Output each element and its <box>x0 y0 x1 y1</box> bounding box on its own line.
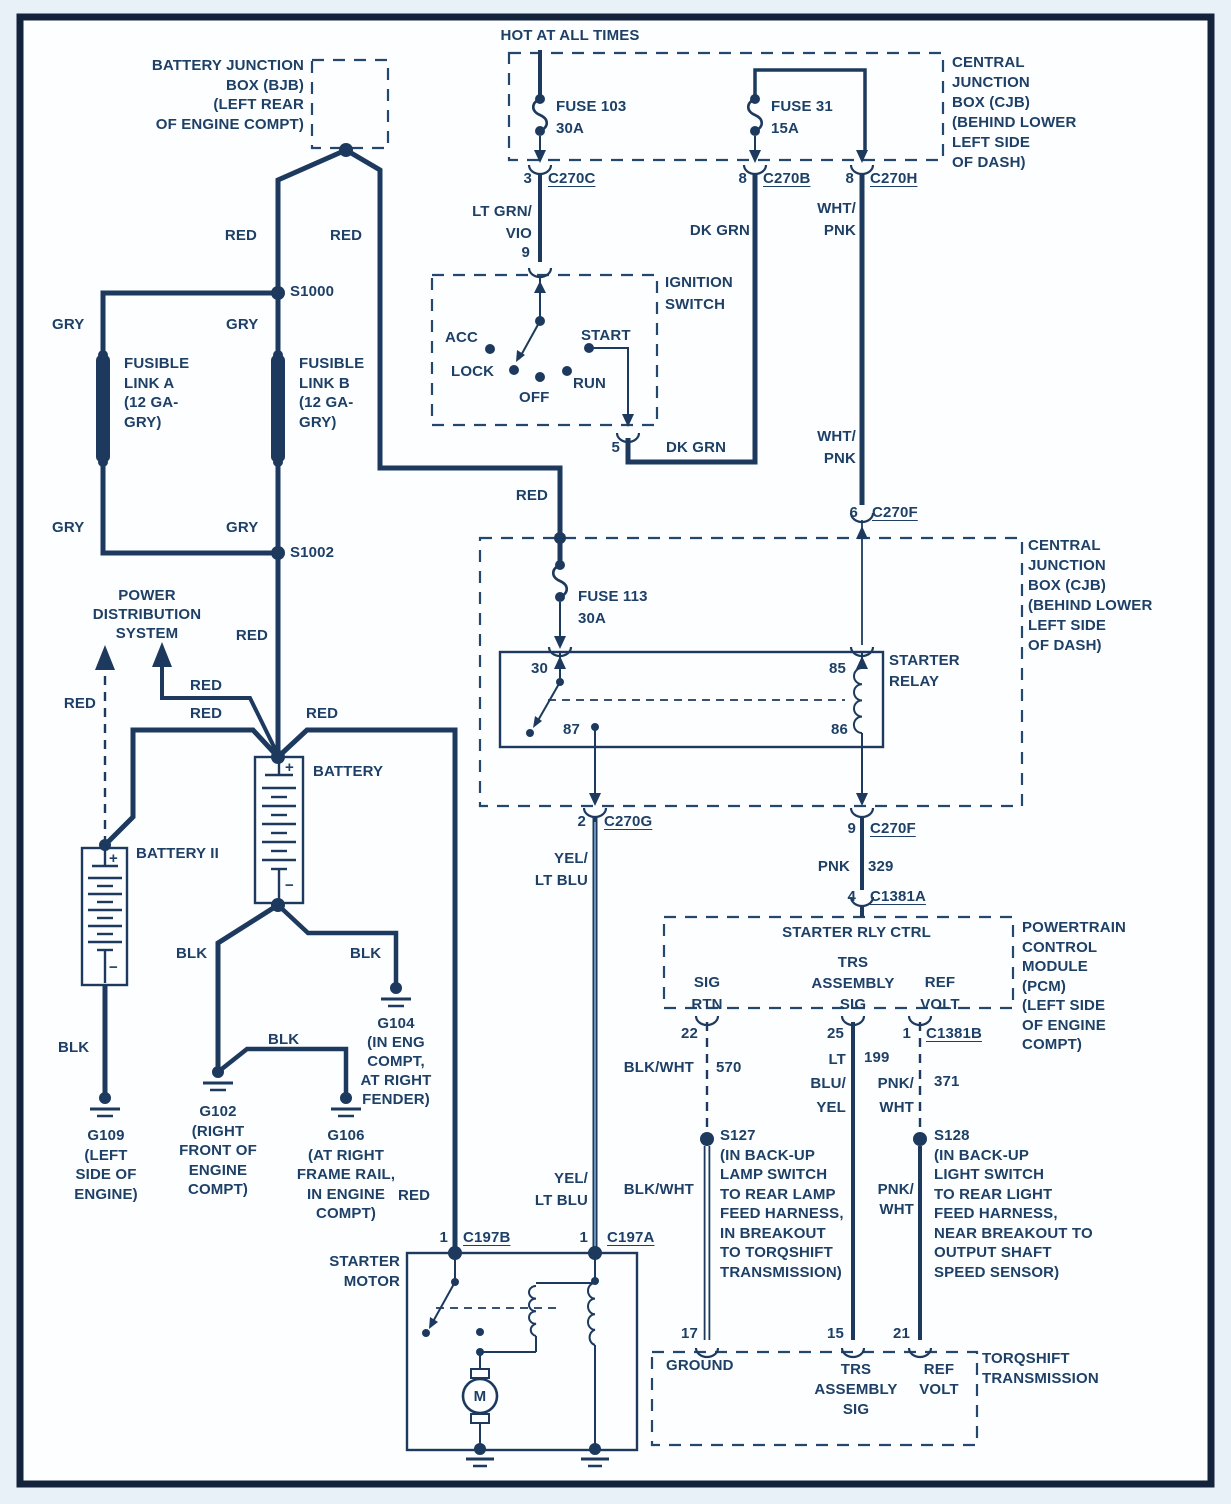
trans-ref-label: REF VOLT <box>906 1360 972 1400</box>
pcm-pin22: 22 <box>668 1024 698 1044</box>
pnk-wht-label-2: PNK/ WHT <box>866 1180 914 1220</box>
pcm-sig-rtn: SIG RTN <box>677 972 737 1016</box>
s127-label: S127 (IN BACK-UP LAMP SWITCH TO REAR LAM… <box>720 1126 890 1282</box>
fusible-link-a-symbol <box>96 355 110 462</box>
circuit-329-label: 329 <box>868 857 918 877</box>
fuse103-label: FUSE 103 30A <box>556 96 646 140</box>
pcm-trs-assembly-sig: TRS ASSEMBLY SIG <box>800 952 906 1015</box>
battery-minus: − <box>285 876 301 896</box>
wht-pnk-label-1: WHT/ PNK <box>808 198 856 242</box>
c1381b-name: C1381B <box>926 1024 1010 1044</box>
red-label-a: RED <box>205 226 257 246</box>
c270f6-pin: 6 <box>832 503 858 523</box>
c1381a-pin: 4 <box>832 887 856 907</box>
g109-label: G109 (LEFT SIDE OF ENGINE) <box>58 1126 154 1204</box>
battery2-label: BATTERY II <box>136 844 266 864</box>
g102-label: G102 (RIGHT FRONT OF ENGINE COMPT) <box>158 1102 278 1200</box>
pcm-ref-volt: REF VOLT <box>908 972 972 1016</box>
pnk-label: PNK <box>806 857 850 877</box>
gry-label-2: GRY <box>226 315 270 335</box>
trans-pin21: 21 <box>880 1324 910 1344</box>
c270h-name: C270H <box>870 169 950 189</box>
battery2-minus: − <box>109 958 125 978</box>
pcm-pin25: 25 <box>814 1024 844 1044</box>
blk-label-battery2: BLK <box>58 1038 102 1058</box>
dk-grn-label-2: DK GRN <box>666 438 758 458</box>
circuit-371-label: 371 <box>934 1072 978 1092</box>
fusible-link-b-symbol <box>271 355 285 462</box>
fusible-link-a-label: FUSIBLE LINK A (12 GA- GRY) <box>124 354 208 432</box>
red-label-pds: RED <box>50 694 96 714</box>
c197a-pin: 1 <box>566 1228 588 1248</box>
trans-trs-label: TRS ASSEMBLY SIG <box>806 1360 906 1420</box>
battery2-plus: + <box>109 849 125 869</box>
relay-pin87-label: 87 <box>548 720 580 740</box>
relay-pin86-label: 86 <box>816 720 848 740</box>
g104-label: G104 (IN ENG COMPT, AT RIGHT FENDER) <box>348 1014 444 1109</box>
pcm-label: POWERTRAIN CONTROL MODULE (PCM) (LEFT SI… <box>1022 918 1162 1055</box>
c1381a-name: C1381A <box>870 887 954 907</box>
red-label-bus-right: RED <box>306 704 358 724</box>
dk-grn-label-1: DK GRN <box>650 221 750 241</box>
ignition-pin5-label: 5 <box>588 438 620 458</box>
power-distribution-label: POWER DISTRIBUTION SYSTEM <box>86 586 208 643</box>
blk-label-mid: BLK <box>268 1030 312 1050</box>
c197a-name: C197A <box>607 1228 677 1248</box>
bjb-label: BATTERY JUNCTION BOX (BJB) (LEFT REAR OF… <box>126 56 304 134</box>
ignition-switch-label: IGNITION SWITCH <box>665 272 775 316</box>
s1002-label: S1002 <box>290 543 370 563</box>
c197b-pin: 1 <box>426 1228 448 1248</box>
red-label-s1002: RED <box>222 626 268 646</box>
trans-pin17: 17 <box>668 1324 698 1344</box>
c270g-name: C270G <box>604 812 684 832</box>
red-label-starter: RED <box>398 1186 446 1206</box>
ignition-acc-label: ACC <box>436 328 478 348</box>
ignition-run-label: RUN <box>573 374 617 394</box>
trans-ground-label: GROUND <box>666 1356 766 1376</box>
blk-label-right: BLK <box>350 944 394 964</box>
s128-label: S128 (IN BACK-UP LIGHT SWITCH TO REAR LI… <box>934 1126 1194 1282</box>
lt-grn-vio-label: LT GRN/ VIO <box>430 201 532 245</box>
yel-lt-blu-label-1: YEL/ LT BLU <box>518 848 588 892</box>
trans-pin15: 15 <box>814 1324 844 1344</box>
relay-pin30-label: 30 <box>516 659 548 679</box>
gry-label-4: GRY <box>226 518 270 538</box>
s1000-label: S1000 <box>290 282 370 302</box>
yel-lt-blu-label-2: YEL/ LT BLU <box>518 1168 588 1212</box>
red-label-b: RED <box>330 226 382 246</box>
battery-label: BATTERY <box>313 762 423 782</box>
relay-pin85-label: 85 <box>814 659 846 679</box>
gry-label-1: GRY <box>52 315 96 335</box>
red-label-fuse113: RED <box>498 486 548 506</box>
wiring-diagram-page: HOT AT ALL TIMES BATTERY JUNCTION BOX (B… <box>0 0 1231 1504</box>
c270c-pin: 3 <box>502 169 532 189</box>
circuit-570-label: 570 <box>716 1058 760 1078</box>
blk-label-left: BLK <box>176 944 220 964</box>
c270f9-name: C270F <box>870 819 940 839</box>
c270g-pin: 2 <box>560 812 586 832</box>
battery-plus: + <box>285 758 301 778</box>
cjb-lower-label: CENTRAL JUNCTION BOX (CJB) (BEHIND LOWER… <box>1028 536 1188 656</box>
cjb-upper-label: CENTRAL JUNCTION BOX (CJB) (BEHIND LOWER… <box>952 53 1182 173</box>
blk-wht-label-2: BLK/WHT <box>618 1180 694 1200</box>
ignition-pin9-label: 9 <box>488 243 530 263</box>
ignition-lock-label: LOCK <box>451 362 507 382</box>
c270f6-name: C270F <box>872 503 942 523</box>
pnk-wht-label-1: PNK/ WHT <box>866 1072 914 1120</box>
fuse31-label: FUSE 31 15A <box>771 96 861 140</box>
lt-blu-yel-label: LT BLU/ YEL <box>800 1048 846 1120</box>
c270f9-pin: 9 <box>832 819 856 839</box>
g106-label: G106 (AT RIGHT FRAME RAIL, IN ENGINE COM… <box>282 1126 410 1224</box>
red-label-bus-left: RED <box>190 704 242 724</box>
red-label-elbow: RED <box>190 676 242 696</box>
c270b-pin: 8 <box>717 169 747 189</box>
hot-at-all-times-label: HOT AT ALL TIMES <box>470 26 670 46</box>
circuit-199-label: 199 <box>864 1048 908 1068</box>
starter-relay-label: STARTER RELAY <box>889 650 1009 692</box>
fusible-link-b-label: FUSIBLE LINK B (12 GA- GRY) <box>299 354 383 432</box>
starter-motor-label: STARTER MOTOR <box>306 1252 400 1291</box>
c270h-pin: 8 <box>824 169 854 189</box>
wht-pnk-label-2: WHT/ PNK <box>808 426 856 470</box>
ignition-off-label: OFF <box>519 388 563 408</box>
pcm-pin1: 1 <box>885 1024 911 1044</box>
c197b-name: C197B <box>463 1228 533 1248</box>
torqshift-label: TORQSHIFT TRANSMISSION <box>982 1349 1182 1389</box>
gry-label-3: GRY <box>52 518 96 538</box>
motor-m-label: M <box>468 1387 492 1407</box>
ignition-start-label: START <box>581 326 645 346</box>
fuse113-label: FUSE 113 30A <box>578 586 670 630</box>
c270c-name: C270C <box>548 169 628 189</box>
blk-wht-label-1: BLK/WHT <box>618 1058 694 1078</box>
pcm-starter-rly-ctrl: STARTER RLY CTRL <box>700 923 1013 943</box>
